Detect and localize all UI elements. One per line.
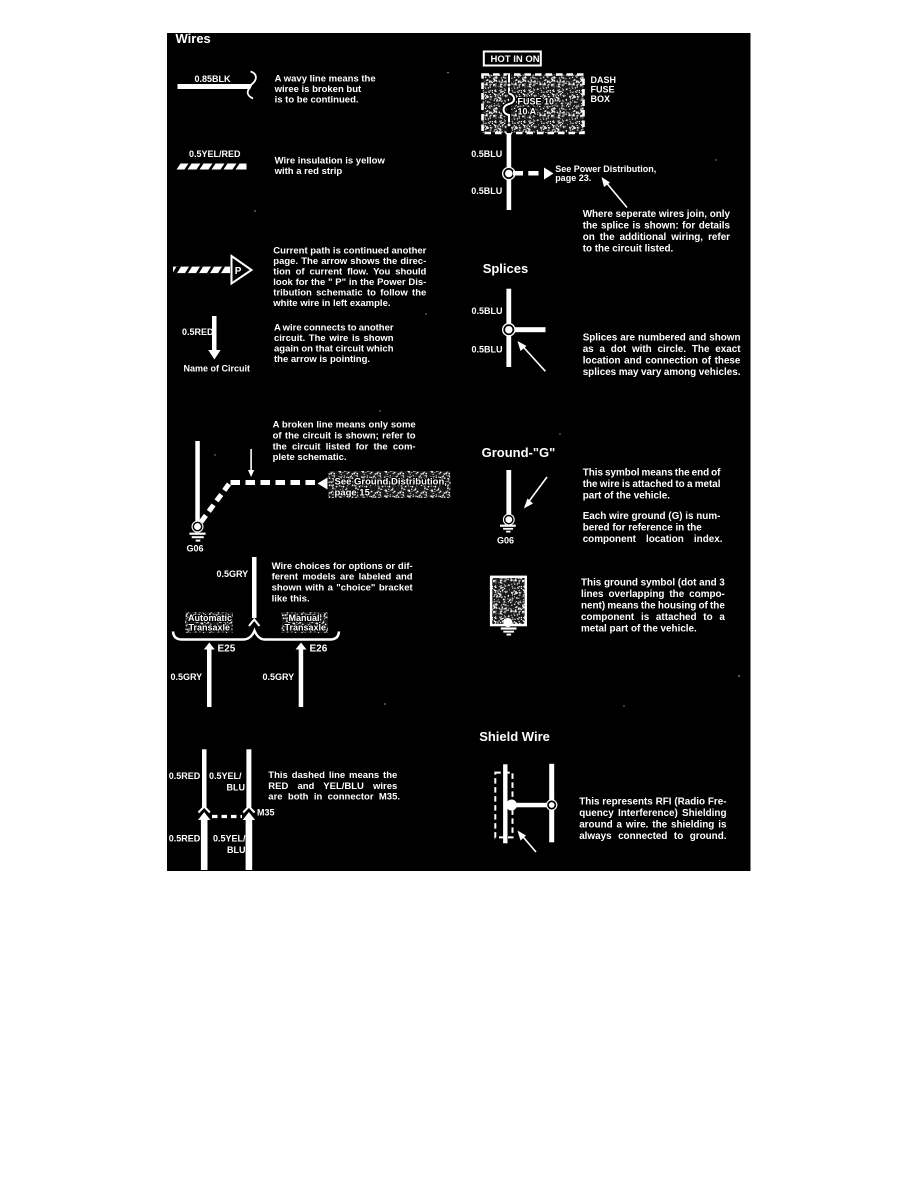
svg-text:Splices are numbered and shown: Splices are numbered and shown	[583, 332, 741, 343]
svg-text:0.5RED: 0.5RED	[169, 771, 201, 781]
svg-text:of the circuit is shown; refer: of the circuit is shown; refer to	[273, 431, 416, 442]
svg-text:0.5RED: 0.5RED	[182, 327, 214, 337]
svg-text:This dashed line means the: This dashed line means the	[268, 770, 397, 781]
svg-text:BLU: BLU	[227, 845, 246, 855]
svg-text:0.5GRY: 0.5GRY	[171, 672, 203, 682]
svg-text:Automatic: Automatic	[188, 613, 232, 623]
svg-text:Wire choices for options or di: Wire choices for options or dif-	[272, 561, 413, 572]
svg-text:the circuit listed for the com: the circuit listed for the com-	[273, 441, 416, 452]
svg-text:FUSE: FUSE	[591, 85, 615, 95]
svg-text:on the additional wiring, refe: on the additional wiring, refer	[583, 232, 730, 243]
svg-text:G06: G06	[187, 544, 204, 554]
svg-text:Splices: Splices	[483, 261, 529, 276]
svg-text:Wires: Wires	[176, 31, 211, 46]
svg-text:0.85BLK: 0.85BLK	[195, 74, 232, 84]
svg-text:0.5BLU: 0.5BLU	[472, 306, 503, 316]
svg-text:Ground-"G": Ground-"G"	[482, 445, 556, 460]
svg-text:component is attached to a: component is attached to a	[581, 612, 725, 623]
svg-text:This represents RFI (Radio Fre: This represents RFI (Radio Fre-	[579, 797, 726, 808]
svg-text:Current path is continued anot: Current path is continued another	[273, 245, 426, 256]
svg-text:This ground symbol (dot and 3: This ground symbol (dot and 3	[581, 578, 725, 589]
svg-text:the arrow is pointing.: the arrow is pointing.	[274, 354, 370, 365]
svg-text:0.5GRY: 0.5GRY	[263, 672, 295, 682]
svg-text:splices may vary among vehicle: splices may vary among vehicles.	[583, 367, 741, 378]
svg-text:lines overlapping the compo-: lines overlapping the compo-	[581, 589, 725, 600]
svg-text:A wire connects to another: A wire connects to another	[274, 323, 394, 334]
svg-text:bered for reference in the: bered for reference in the	[583, 523, 703, 534]
svg-text:page. The arrow shows the dire: page. The arrow shows the direc-	[273, 256, 426, 267]
svg-text:0.5BLU: 0.5BLU	[471, 149, 502, 159]
svg-text:Name of Circuit: Name of Circuit	[184, 364, 251, 374]
svg-text:RED and YEL/BLU wires: RED and YEL/BLU wires	[268, 781, 397, 792]
svg-text:0.5GRY: 0.5GRY	[217, 569, 249, 579]
svg-text:A wavy line means the: A wavy line means the	[275, 74, 376, 85]
svg-text:P: P	[235, 266, 242, 277]
svg-text:Manual: Manual	[289, 613, 320, 623]
svg-text:as a dot with circle. The exac: as a dot with circle. The exact	[583, 344, 742, 355]
svg-text:FUSE 10: FUSE 10	[518, 97, 555, 107]
svg-text:shown with a "choice" bracket: shown with a "choice" bracket	[272, 583, 414, 594]
svg-text:Transaxle: Transaxle	[189, 623, 231, 633]
svg-text:BOX: BOX	[591, 94, 611, 104]
svg-text:wiree is broken but: wiree is broken but	[274, 84, 362, 95]
svg-text:BLU: BLU	[227, 782, 246, 792]
svg-text:the wire is attached to a meta: the wire is attached to a metal	[583, 479, 721, 490]
svg-text:0.5BLU: 0.5BLU	[471, 186, 502, 196]
svg-text:E26: E26	[310, 644, 328, 655]
svg-text:nent) means the housing of the: nent) means the housing of the	[581, 601, 725, 612]
svg-text:Transaxle: Transaxle	[285, 623, 327, 633]
svg-text:0.5RED: 0.5RED	[169, 834, 201, 844]
svg-text:Shield Wire: Shield Wire	[479, 729, 550, 744]
svg-text:again on that circuit which: again on that circuit which	[274, 344, 394, 355]
svg-text:E25: E25	[218, 644, 236, 655]
svg-text:to the circuit listed.: to the circuit listed.	[583, 243, 674, 254]
svg-text:like this.: like this.	[272, 593, 310, 604]
svg-text:0.5YEL/: 0.5YEL/	[213, 834, 246, 844]
svg-text:G06: G06	[497, 536, 514, 546]
svg-text:This symbol means the end of: This symbol means the end of	[583, 468, 721, 479]
svg-text:with a red strip: with a red strip	[274, 166, 343, 177]
svg-text:Where seperate wires join, onl: Where seperate wires join, only	[583, 209, 731, 220]
svg-text:10 A: 10 A	[518, 107, 537, 117]
svg-text:page 23.: page 23.	[555, 173, 591, 183]
svg-text:DASH: DASH	[591, 75, 617, 85]
svg-text:location and connection of the: location and connection of these	[583, 355, 741, 366]
svg-text:0.5BLU: 0.5BLU	[472, 345, 503, 355]
svg-text:plete schematic.: plete schematic.	[273, 452, 347, 463]
svg-text:the splice is shown: for detai: the splice is shown: for details	[583, 220, 731, 231]
svg-text:are both in connector M35.: are both in connector M35.	[268, 792, 400, 803]
svg-text:circuit. The wire is shown: circuit. The wire is shown	[274, 333, 394, 344]
svg-text:metal part of the vehicle.: metal part of the vehicle.	[581, 624, 697, 635]
svg-text:component location index.: component location index.	[583, 534, 723, 545]
svg-text:A broken line means only some: A broken line means only some	[273, 420, 416, 431]
svg-text:0.5YEL/: 0.5YEL/	[209, 771, 242, 781]
svg-text:look for the " P" in the Power: look for the " P" in the Power Dis-	[273, 277, 426, 288]
svg-text:See Ground Distribution,: See Ground Distribution,	[335, 477, 447, 488]
svg-text:Each wire ground (G) is num-: Each wire ground (G) is num-	[583, 511, 721, 522]
svg-text:page 15: page 15	[335, 488, 371, 499]
svg-text:part of the vehicle.: part of the vehicle.	[583, 491, 671, 502]
svg-text:is to be continued.: is to be continued.	[275, 95, 359, 106]
svg-text:white wire in left example.: white wire in left example.	[272, 298, 390, 309]
svg-text:HOT IN ON: HOT IN ON	[491, 54, 540, 65]
svg-text:always connected to ground.: always connected to ground.	[579, 831, 727, 842]
svg-text:quency Interference) Shielding: quency Interference) Shielding	[579, 808, 726, 819]
svg-text:around a wire. the shielding i: around a wire. the shielding is	[579, 820, 727, 831]
svg-text:Wire insulation is yellow: Wire insulation is yellow	[275, 156, 386, 167]
svg-text:M35: M35	[257, 808, 275, 818]
svg-text:tribution schematic to follow: tribution schematic to follow the	[273, 287, 426, 298]
svg-text:tion of current flow. You shou: tion of current flow. You should	[273, 266, 426, 277]
svg-text:ferent models are labeled and: ferent models are labeled and	[272, 572, 413, 583]
svg-text:0.5YEL/RED: 0.5YEL/RED	[189, 149, 241, 159]
